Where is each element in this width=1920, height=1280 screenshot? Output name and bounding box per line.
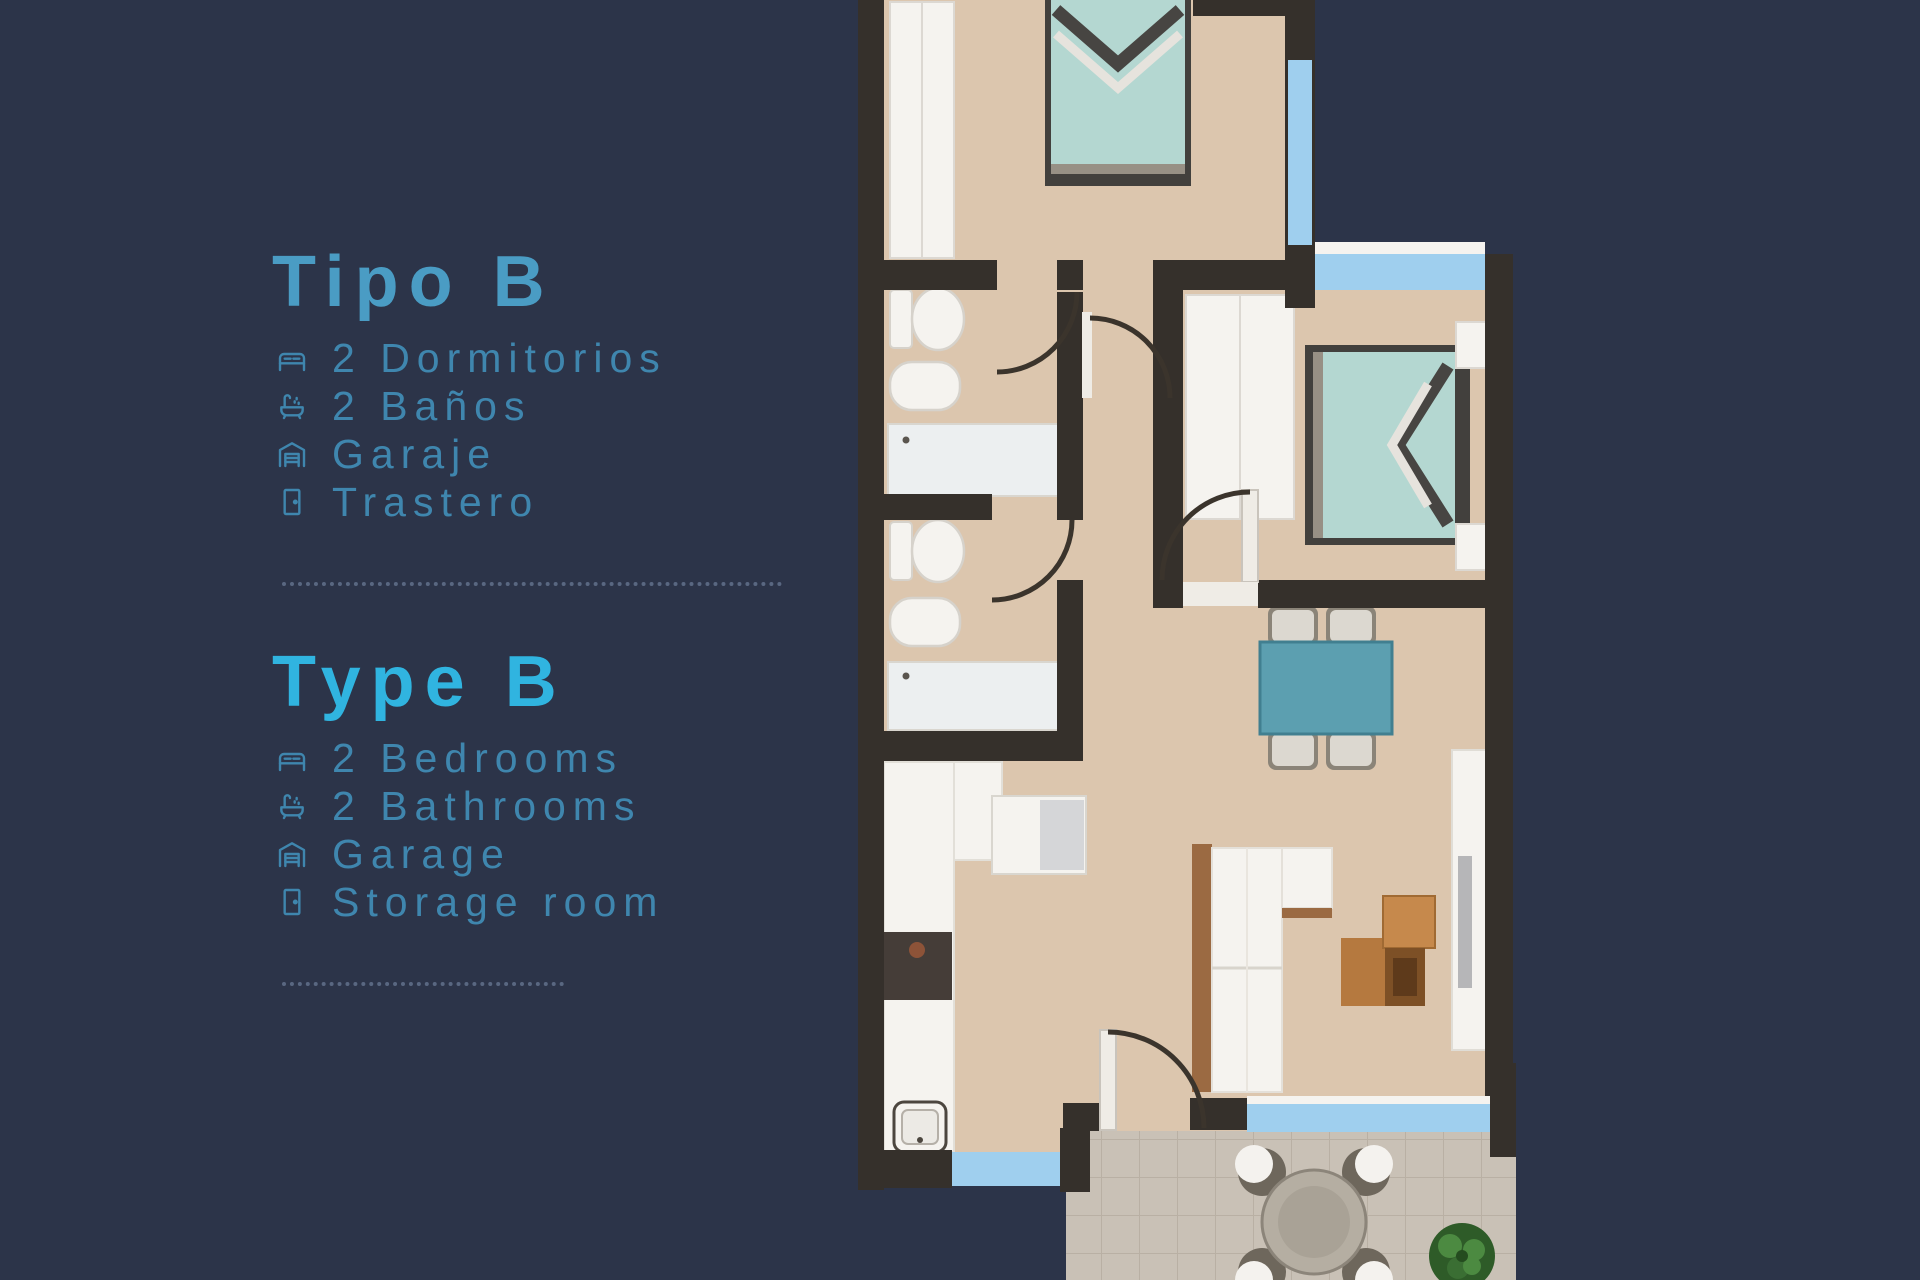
dotted-divider [282,582,782,586]
list-item: Trastero [272,478,832,526]
bed-2 [1305,345,1470,545]
window [952,1152,1060,1186]
wall-segment [884,260,997,290]
wall-segment [1063,1103,1101,1131]
door-leaf-entrance [1100,1030,1116,1130]
wall-segment [884,731,1083,761]
door-threshold [1183,582,1258,606]
window [1288,60,1312,245]
dining-table [1260,606,1392,770]
garage-icon [276,438,308,470]
bed-1 [1045,0,1191,186]
shower [888,424,1060,496]
toilet-bowl [912,520,964,582]
shower-drain [903,437,910,444]
section-tipo-b: Tipo B 2 Dormitorios 2 Baños Garaje Tras… [272,246,832,526]
wall-segment [1258,580,1513,608]
list-item: Garage [272,830,832,878]
feature-label: Garage [332,832,511,876]
tv-unit [1452,750,1488,1050]
list-item: Garaje [272,430,832,478]
list-item: 2 Bathrooms [272,782,832,830]
wall-segment [1485,254,1513,1110]
list-item: Storage room [272,878,832,926]
window-sill [1247,1096,1490,1104]
door-leaf-bedroom-1 [1082,312,1092,398]
feature-list-en: 2 Bedrooms 2 Bathrooms Garage Storage ro… [272,734,832,926]
bathtub [890,598,960,646]
bathtub [890,362,960,410]
wall-segment [1057,494,1083,520]
door-icon [276,886,308,918]
list-item: 2 Bedrooms [272,734,832,782]
sink-drain [917,1137,923,1143]
toilet [890,522,912,580]
feature-label: 2 Bathrooms [332,784,641,828]
terrace-table [1262,1170,1366,1274]
bed-icon [276,742,308,774]
shower-drain [903,673,910,680]
wall-segment [1193,0,1290,16]
garage-icon [276,838,308,870]
toilet-bowl [912,288,964,350]
feature-label: 2 Baños [332,384,531,428]
feature-label: Garaje [332,432,497,476]
shower [888,662,1060,730]
list-item: 2 Baños [272,382,832,430]
fridge-door [1040,800,1084,870]
section-heading-en: Type B [272,646,832,718]
poster: Tipo B 2 Dormitorios 2 Baños Garaje Tras… [0,0,1920,1280]
bath-icon [276,390,308,422]
toilet [890,290,912,348]
feature-label: Storage room [332,880,664,924]
section-heading-es: Tipo B [272,246,832,318]
dotted-divider [282,982,564,986]
feature-list-es: 2 Dormitorios 2 Baños Garaje Trastero [272,334,832,526]
wall-segment [1153,290,1183,608]
list-item: 2 Dormitorios [272,334,832,382]
feature-label: Trastero [332,480,539,524]
wall-segment [1057,260,1083,290]
window [1247,1104,1490,1132]
wall-segment [1490,1063,1516,1157]
wall-segment [858,1150,952,1188]
bath-icon [276,790,308,822]
wall-segment [1057,580,1083,757]
wall-segment [1153,260,1315,290]
door-icon [276,486,308,518]
feature-label: 2 Dormitorios [332,336,667,380]
feature-label: 2 Bedrooms [332,736,623,780]
legend-panel: Tipo B 2 Dormitorios 2 Baños Garaje Tras… [272,246,832,986]
window-sill [1315,242,1485,254]
bed-icon [276,342,308,374]
nightstand [1456,322,1488,368]
wall-segment [858,0,884,1190]
section-type-b: Type B 2 Bedrooms 2 Bathrooms Garage Sto… [272,646,832,926]
nightstand [1456,524,1488,570]
door-leaf-bedroom-2 [1242,490,1258,582]
window [1315,254,1485,290]
stove-burner [909,942,925,958]
wall-segment [1060,1128,1090,1192]
wall-segment [884,494,992,520]
